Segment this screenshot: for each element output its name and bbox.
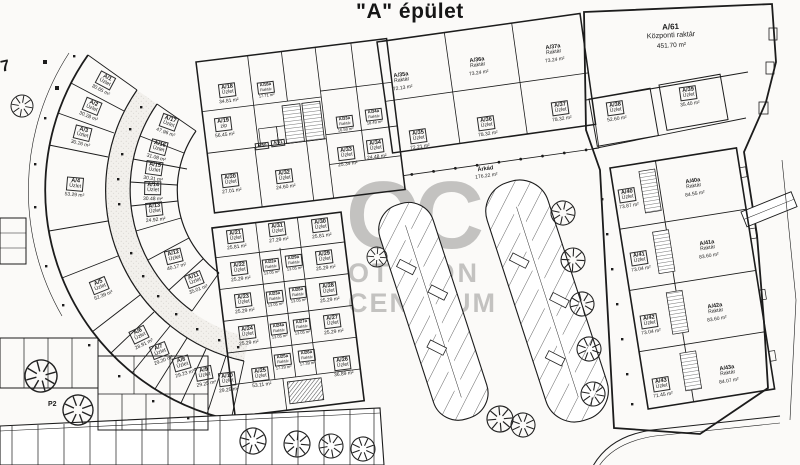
- room-label: A/39 Üzlet 35.40 m²: [678, 85, 701, 109]
- room-type: Üzlet: [222, 379, 234, 386]
- room-type: Üzlet: [370, 146, 382, 153]
- room-area: 84.07 m²: [719, 377, 739, 386]
- room-area: 78.32 m²: [478, 131, 498, 139]
- room-label: A/36 Üzlet 78.32 m²: [476, 115, 499, 139]
- room-type: Üzlet: [622, 195, 635, 203]
- room-code-box: A/19 zip: [214, 116, 232, 132]
- room-label: A/4 Üzlet 53.29 m²: [64, 176, 86, 199]
- room-label: A/33a Raktár 16.58 m²: [336, 115, 355, 134]
- room-label: A/43 Üzlet 71.45 m²: [651, 376, 674, 400]
- room-label: A/21 Üzlet 25.81 m²: [225, 228, 247, 252]
- room-label: A/23a Raktár 13.05 m²: [266, 290, 285, 309]
- room-area: 18.49 m²: [367, 120, 383, 126]
- room-area: 176.22 m²: [475, 173, 498, 182]
- room-label: A/42a Raktár 83.60 m²: [705, 302, 728, 324]
- room-label: A/26 Üzlet 36.89 m²: [332, 355, 354, 379]
- room-area: 13.05 m²: [291, 298, 307, 304]
- room-type: Üzlet: [481, 123, 494, 131]
- room-type: Üzlet: [327, 321, 339, 328]
- room-type: Üzlet: [255, 374, 267, 381]
- room-code: A/50: [257, 143, 267, 149]
- room-label: A/15 Üzlet 30.31 m²: [143, 160, 166, 184]
- room-area: 25.29 m²: [239, 340, 259, 348]
- room-area: 72.21 m²: [410, 144, 430, 152]
- room-label: A/24 Üzlet 25.29 m²: [237, 324, 259, 348]
- room-label: A/29a Raktár 13.05 m²: [285, 254, 304, 273]
- room-area: 24.92 m²: [146, 217, 166, 225]
- room-area: 73.87 m²: [619, 202, 639, 211]
- room-code-box: A/27 Üzlet: [323, 313, 341, 329]
- room-code-box: A/50: [255, 142, 270, 151]
- room-area: 73.24 m²: [545, 57, 565, 65]
- room-label: A/18a Raktár 17.71 m²: [257, 81, 276, 100]
- room-code-box: A/31 Üzlet: [268, 221, 286, 237]
- room-area: 25.29 m²: [316, 265, 336, 273]
- room-code-box: A/26 Üzlet: [333, 355, 351, 371]
- room-area: 53.29 m²: [64, 192, 84, 199]
- room-label: A/41 Üzlet 73.04 m²: [629, 250, 652, 274]
- room-type: Központi raktár: [647, 30, 696, 41]
- room-type: Üzlet: [341, 153, 353, 160]
- room-label: A/28a Raktár 13.05 m²: [289, 286, 308, 305]
- room-area: 13.05 m²: [287, 266, 303, 272]
- room-label: A/41a Raktár 83.60 m²: [697, 239, 720, 261]
- room-area: 84.55 m²: [685, 190, 705, 199]
- room-area: 36.89 m²: [334, 371, 354, 379]
- room-label: A/19 zip 56.45 m²: [213, 116, 235, 140]
- floor-plan: OC OTTHON CENTRUM: [0, 0, 800, 465]
- room-area: 25.29 m²: [235, 308, 255, 316]
- room-label: A/17 Üzlet 47.96 m²: [155, 112, 181, 139]
- room-label: A/25a Raktár 17.29 m²: [274, 353, 293, 372]
- room-label: A/2 Üzlet 30.28 m²: [78, 96, 104, 123]
- room-code-box: A/13 Üzlet: [146, 201, 164, 217]
- room-code-box: A/30 Üzlet: [311, 217, 329, 233]
- room-code-box: A/22 Üzlet: [230, 260, 248, 276]
- room-area: 13.05 m²: [272, 334, 288, 340]
- room-label: A/40 Üzlet 73.87 m²: [617, 187, 640, 211]
- room-label: A/34a Raktár 18.49 m²: [365, 108, 384, 127]
- room-type: Üzlet: [149, 209, 161, 216]
- room-label: A/51: [271, 139, 286, 148]
- room-label: A/3 Üzlet 30.26 m²: [70, 124, 94, 150]
- room-area: 73.24 m²: [469, 70, 489, 78]
- room-label: A/26a Raktár 17.39 m²: [298, 349, 317, 368]
- room-label: A/11 Üzlet 35.01 m²: [183, 269, 209, 296]
- room-area: 17.39 m²: [300, 361, 316, 367]
- room-label: A/9 Üzlet 29.25 m²: [193, 364, 217, 389]
- room-code-box: A/28 Üzlet: [319, 281, 337, 297]
- room-code-box: A/61 Központi raktár: [645, 21, 697, 41]
- room-label: A/40a Raktár 84.55 m²: [683, 177, 706, 199]
- room-area: 83.60 m²: [699, 252, 719, 261]
- room-label: A/29 Üzlet 25.29 m²: [314, 249, 336, 273]
- room-area: 72.13 m²: [393, 85, 413, 93]
- room-label: A/43a Raktár 84.07 m²: [717, 364, 740, 386]
- room-code-box: A/25 Üzlet: [251, 366, 269, 382]
- room-type: Üzlet: [683, 93, 696, 101]
- room-area: 17.29 m²: [276, 365, 292, 371]
- room-label: A/61 Központi raktár 451.70 m²: [645, 21, 698, 51]
- room-area: 30.48 m²: [143, 197, 163, 203]
- room-area: 53.11 m²: [252, 382, 272, 390]
- room-area: 13.05 m²: [295, 330, 311, 336]
- room-labels-layer: A/1 Üzlet 30.65 m² A/2 Üzlet 30.28 m² A/…: [0, 0, 800, 465]
- room-label: A/20 Üzlet 27.01 m²: [220, 172, 242, 196]
- room-area: 83.60 m²: [707, 315, 727, 324]
- room-code-box: A/35 Üzlet: [409, 128, 428, 145]
- room-label: A/23 Üzlet 25.29 m²: [233, 292, 255, 316]
- room-code-box: A/34 Üzlet: [366, 138, 384, 154]
- room-label: A/25 Üzlet 53.11 m²: [250, 366, 272, 390]
- room-code-box: A/32 Üzlet: [275, 168, 293, 184]
- room-label: A/22 Üzlet 25.29 m²: [229, 260, 251, 284]
- room-label: A/1 Üzlet 30.65 m²: [90, 70, 118, 98]
- room-area: 25.81 m²: [227, 244, 247, 252]
- room-label: A/22a Raktár 13.05 m²: [262, 258, 281, 277]
- room-area: 25.34 m²: [338, 161, 358, 169]
- room-area: 78.32 m²: [552, 116, 572, 124]
- room-area: 29.25 m²: [219, 387, 239, 395]
- room-code-box: A/29 Üzlet: [315, 249, 333, 265]
- room-type: Üzlet: [222, 90, 234, 97]
- room-area: 24.48 m²: [367, 154, 387, 162]
- room-type: Üzlet: [279, 176, 291, 183]
- room-code-box: A/51: [271, 139, 286, 148]
- room-area: 56.45 m²: [215, 132, 235, 140]
- room-area: 25.29 m²: [231, 276, 251, 284]
- room-code-box: A/18 Üzlet: [218, 82, 236, 98]
- room-area: 29.25 m²: [196, 380, 216, 389]
- room-area: 27.01 m²: [222, 188, 242, 196]
- room-type: Üzlet: [315, 225, 327, 232]
- room-area: 52.60 m²: [607, 116, 627, 124]
- room-type: Üzlet: [272, 229, 284, 236]
- room-label: A/37 Üzlet 78.32 m²: [550, 100, 573, 124]
- room-type: Üzlet: [656, 384, 669, 392]
- room-label: A/12 Üzlet 40.17 m²: [163, 247, 187, 273]
- room-label: A/50: [255, 142, 270, 151]
- room-type: Üzlet: [634, 258, 647, 266]
- room-code-box: A/33 Üzlet: [337, 145, 355, 161]
- room-type: Üzlet: [242, 332, 254, 339]
- room-area: 73.04 m²: [631, 265, 651, 274]
- room-type: Üzlet: [148, 168, 161, 176]
- room-type: Üzlet: [230, 236, 242, 243]
- room-area: 71.45 m²: [653, 391, 673, 400]
- room-type: Üzlet: [337, 363, 349, 370]
- room-label: A/42 Üzlet 73.04 m²: [639, 313, 662, 337]
- room-label: A/30 Üzlet 25.81 m²: [310, 217, 332, 241]
- room-type: Üzlet: [555, 108, 568, 116]
- room-type: Üzlet: [147, 188, 159, 194]
- room-label: A/8 Üzlet 29.23 m²: [171, 354, 196, 380]
- room-label: A/14 Üzlet 30.48 m²: [143, 181, 163, 203]
- room-label: A/32 Üzlet 24.60 m²: [274, 168, 296, 192]
- room-label: A/24a Raktár 13.05 m²: [270, 322, 289, 341]
- room-label: A/35 Üzlet 72.21 m²: [408, 128, 431, 152]
- room-code-box: A/36 Üzlet: [477, 115, 496, 132]
- room-label: A/38 Üzlet 52.60 m²: [605, 100, 628, 124]
- room-code-box: A/20 Üzlet: [221, 172, 239, 188]
- room-label: A/35a Raktár 72.13 m²: [391, 71, 413, 93]
- room-label: A/27a Raktár 13.05 m²: [293, 318, 312, 337]
- room-label: A/37a Raktár 73.24 m²: [543, 43, 565, 65]
- room-area: 25.29 m²: [324, 329, 344, 337]
- room-area: 13.05 m²: [264, 270, 280, 276]
- room-label: A/18 Üzlet 34.81 m²: [217, 82, 239, 106]
- room-type: Üzlet: [225, 180, 237, 187]
- room-label: A/5 Üzlet 52.39 m²: [88, 275, 114, 302]
- room-type: Üzlet: [238, 300, 250, 307]
- room-label: A/28 Üzlet 25.29 m²: [318, 281, 340, 305]
- room-code-box: A/21 Üzlet: [226, 228, 244, 244]
- room-area: 27.29 m²: [269, 237, 289, 245]
- room-label: A/10 Üzlet 29.25 m²: [217, 371, 239, 395]
- room-label: A/33 Üzlet 25.34 m²: [336, 145, 358, 169]
- room-type: Üzlet: [323, 289, 335, 296]
- room-label: A/13 Üzlet 24.92 m²: [144, 201, 166, 225]
- room-type: Üzlet: [69, 184, 81, 191]
- room-code-box: A/23 Üzlet: [234, 292, 252, 308]
- room-area: 34.81 m²: [219, 98, 239, 106]
- room-code-box: A/10 Üzlet: [218, 371, 236, 387]
- room-area: 25.29 m²: [320, 297, 340, 305]
- room-area: 35.40 m²: [680, 101, 700, 109]
- room-area: 17.71 m²: [259, 93, 275, 99]
- room-label: A/36a Raktár 73.24 m²: [467, 56, 489, 78]
- room-label: A/31 Üzlet 27.29 m²: [267, 221, 289, 245]
- room-type: Üzlet: [644, 321, 657, 329]
- room-area: 73.04 m²: [641, 328, 661, 337]
- room-type: Üzlet: [319, 257, 331, 264]
- room-area: 451.70 m²: [657, 41, 687, 50]
- room-label: Árkád 176.22 m²: [474, 165, 498, 182]
- room-code: A/51: [273, 140, 283, 146]
- room-label: A/27 Üzlet 25.29 m²: [322, 313, 344, 337]
- room-label: A/34 Üzlet 24.48 m²: [365, 138, 387, 162]
- room-area: 24.60 m²: [276, 184, 296, 192]
- room-code-box: A/4 Üzlet: [66, 176, 84, 192]
- room-area: 16.58 m²: [338, 127, 354, 133]
- room-area: 25.81 m²: [312, 233, 332, 241]
- room-type: zip: [218, 124, 230, 131]
- room-code-box: A/24 Üzlet: [238, 324, 256, 340]
- room-code-box: A/39 Üzlet: [679, 85, 698, 102]
- room-area: 13.05 m²: [268, 302, 284, 308]
- room-code-box: A/38 Üzlet: [606, 100, 625, 117]
- room-label: A/16 Üzlet 31.08 m²: [146, 138, 171, 164]
- room-type: Üzlet: [234, 268, 246, 275]
- room-code-box: A/37 Üzlet: [551, 100, 570, 117]
- room-type: Üzlet: [413, 136, 426, 144]
- room-type: Üzlet: [610, 108, 623, 116]
